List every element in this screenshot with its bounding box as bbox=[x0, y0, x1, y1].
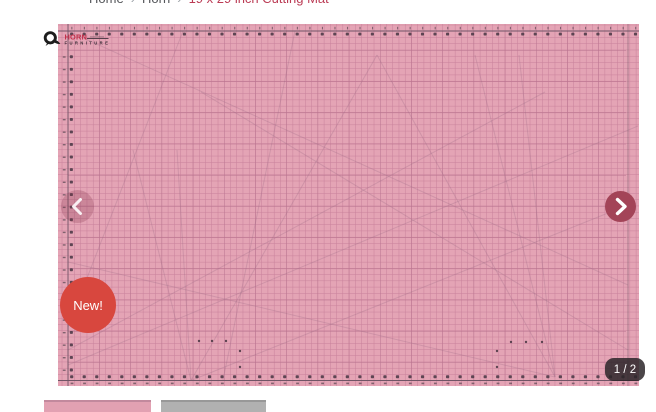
svg-text:FURNITURE: FURNITURE bbox=[65, 41, 111, 46]
